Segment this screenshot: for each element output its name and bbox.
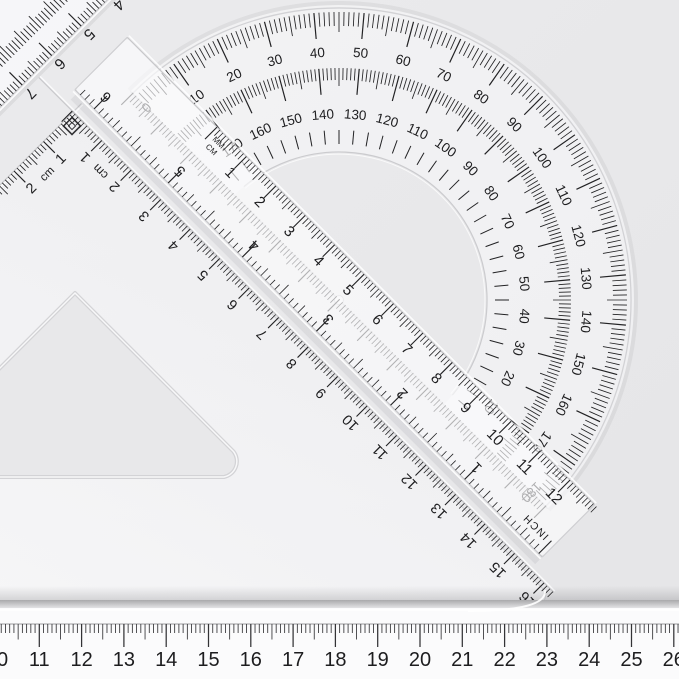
- bottom-ruler-top-edge: [0, 600, 679, 608]
- degree-label-inner: 50: [516, 276, 532, 292]
- bottom-ruler-number: 22: [493, 649, 515, 671]
- bottom-ruler-number: 11: [29, 649, 50, 671]
- bottom-ruler-number: 24: [578, 649, 600, 671]
- bottom-ruler-shadow: [0, 586, 679, 600]
- degree-label-inner: 40: [516, 308, 532, 324]
- bottom-ruler-number: 16: [240, 649, 262, 671]
- bottom-ruler-number: 26: [663, 649, 679, 671]
- bottom-ruler-number: 14: [155, 649, 177, 671]
- bottom-ruler-number: 23: [536, 649, 558, 671]
- bottom-ruler-number: 19: [367, 649, 389, 671]
- degree-label-outer: 50: [352, 45, 368, 61]
- bottom-ruler-number: 10: [0, 649, 8, 671]
- degree-label-outer: 40: [309, 45, 325, 61]
- measuring-tools-scene: 12cm 01020304050607080901001101201301401…: [0, 0, 679, 679]
- bottom-ruler-number: 25: [620, 649, 642, 671]
- bottom-ruler-number: 12: [70, 649, 92, 671]
- degree-label-inner: 130: [343, 106, 367, 123]
- bottom-ruler-number: 17: [282, 649, 304, 671]
- bottom-ruler: 1011121314151617181920212223242526: [0, 586, 679, 679]
- bottom-ruler-number: 13: [113, 649, 135, 671]
- bottom-ruler-number: 20: [409, 649, 431, 671]
- degree-label-inner: 140: [311, 106, 335, 123]
- degree-label-outer: 130: [578, 267, 595, 291]
- degree-label-outer: 140: [578, 310, 595, 334]
- bottom-ruler-number: 18: [324, 649, 346, 671]
- bottom-ruler-number: 21: [451, 649, 473, 671]
- photo-of-measuring-tools: 12cm 01020304050607080901001101201301401…: [0, 0, 679, 679]
- bottom-ruler-number: 15: [197, 649, 219, 671]
